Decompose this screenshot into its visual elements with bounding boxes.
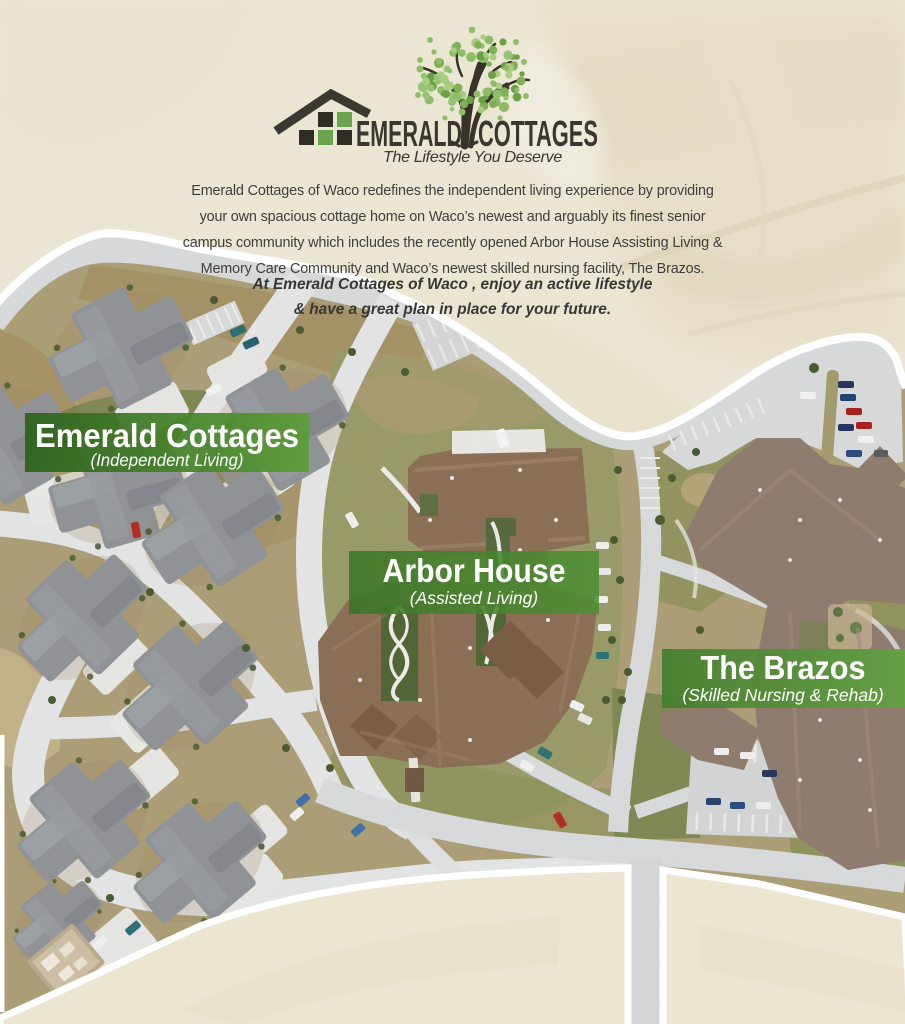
svg-text:Arbor House: Arbor House bbox=[383, 552, 566, 589]
svg-text:Emerald Cottages: Emerald Cottages bbox=[35, 417, 299, 454]
svg-text:(Skilled Nursing & Rehab): (Skilled Nursing & Rehab) bbox=[682, 685, 883, 705]
svg-text:(Assisted Living): (Assisted Living) bbox=[410, 588, 538, 608]
svg-text:COTTAGES: COTTAGES bbox=[478, 113, 598, 154]
svg-text:The Brazos: The Brazos bbox=[701, 649, 866, 686]
svg-text:(Independent Living): (Independent Living) bbox=[91, 450, 244, 470]
